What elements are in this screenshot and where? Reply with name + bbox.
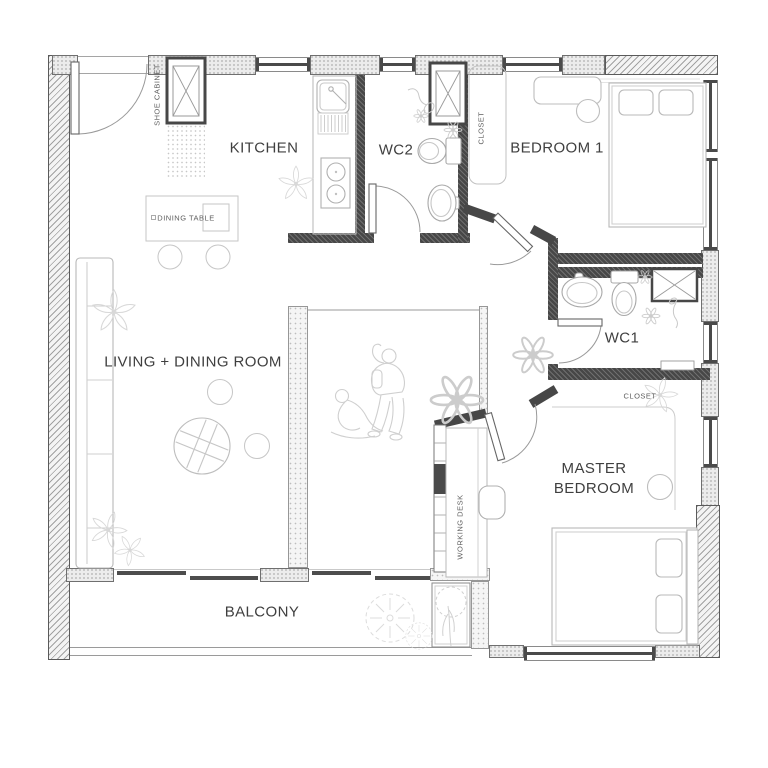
floor-plan: KITCHEN WC2 BEDROOM 1 LIVING + DINING RO… xyxy=(0,0,768,768)
master-bedroom-label: MASTER BEDROOM xyxy=(554,459,634,500)
wc2-label: WC2 xyxy=(379,142,414,159)
balcony-shrub xyxy=(366,594,414,642)
plant-icon xyxy=(278,166,314,200)
wc1-shower-box xyxy=(652,269,697,301)
dining-table-marker xyxy=(151,215,156,220)
wc1-toilet xyxy=(611,271,638,316)
flower-sketch xyxy=(513,336,553,374)
master-door xyxy=(485,404,537,463)
bedroom1-stool xyxy=(577,100,600,123)
balcony-shrub xyxy=(406,623,432,649)
washer-niche-box xyxy=(430,63,466,124)
master-bedroom-label-line2: BEDROOM xyxy=(554,479,634,499)
bedroom1-closet xyxy=(469,66,506,184)
bedroom1-door xyxy=(490,213,533,265)
dining-stool xyxy=(206,245,230,269)
desk-chair xyxy=(479,486,505,519)
coffee-table xyxy=(168,412,236,480)
kitchen-label: KITCHEN xyxy=(230,140,299,157)
bedroom1-bed xyxy=(609,83,706,227)
master-bed xyxy=(552,528,698,645)
flower-icon xyxy=(414,109,428,123)
closet-master-label: CLOSET xyxy=(623,392,656,401)
kitchen-drainboard xyxy=(318,113,348,134)
working-desk-label: WORKING DESK xyxy=(456,494,465,559)
wc1-bench xyxy=(661,361,694,370)
angled-walls xyxy=(435,208,556,425)
working-desk-wall xyxy=(434,425,446,572)
flower-icon xyxy=(638,270,652,284)
wc2-toilet xyxy=(418,138,461,164)
living-stool xyxy=(208,380,233,405)
entrance-threshold xyxy=(78,57,148,74)
wc1-door xyxy=(558,319,602,363)
planter-box xyxy=(432,583,470,647)
master-bedroom-label-line1: MASTER xyxy=(554,459,634,479)
closet-bedroom1-label: CLOSET xyxy=(477,111,486,144)
balcony-label: BALCONY xyxy=(225,604,300,621)
flower-icon xyxy=(642,307,660,324)
kitchen-sink xyxy=(317,80,349,113)
plant-icon xyxy=(109,529,151,570)
entrance-door xyxy=(71,62,147,134)
wc1-label: WC1 xyxy=(605,330,640,347)
master-stool xyxy=(648,475,673,500)
living-stool xyxy=(245,434,270,459)
dining-table-label: DINING TABLE xyxy=(157,214,214,223)
shoe-cabinet-label: SHOE CABINET xyxy=(153,64,162,126)
wc2-washbasin xyxy=(428,185,459,221)
dining-stool xyxy=(158,245,182,269)
plan-drawing xyxy=(0,0,768,768)
wc1-washbasin xyxy=(562,273,602,307)
shoe-cabinet-box xyxy=(167,58,205,123)
bedroom1-label: BEDROOM 1 xyxy=(510,140,604,157)
stove xyxy=(321,158,350,208)
living-dining-label: LIVING + DINING ROOM xyxy=(104,354,282,371)
planter-tree xyxy=(436,587,466,646)
wc2-door xyxy=(369,184,420,233)
